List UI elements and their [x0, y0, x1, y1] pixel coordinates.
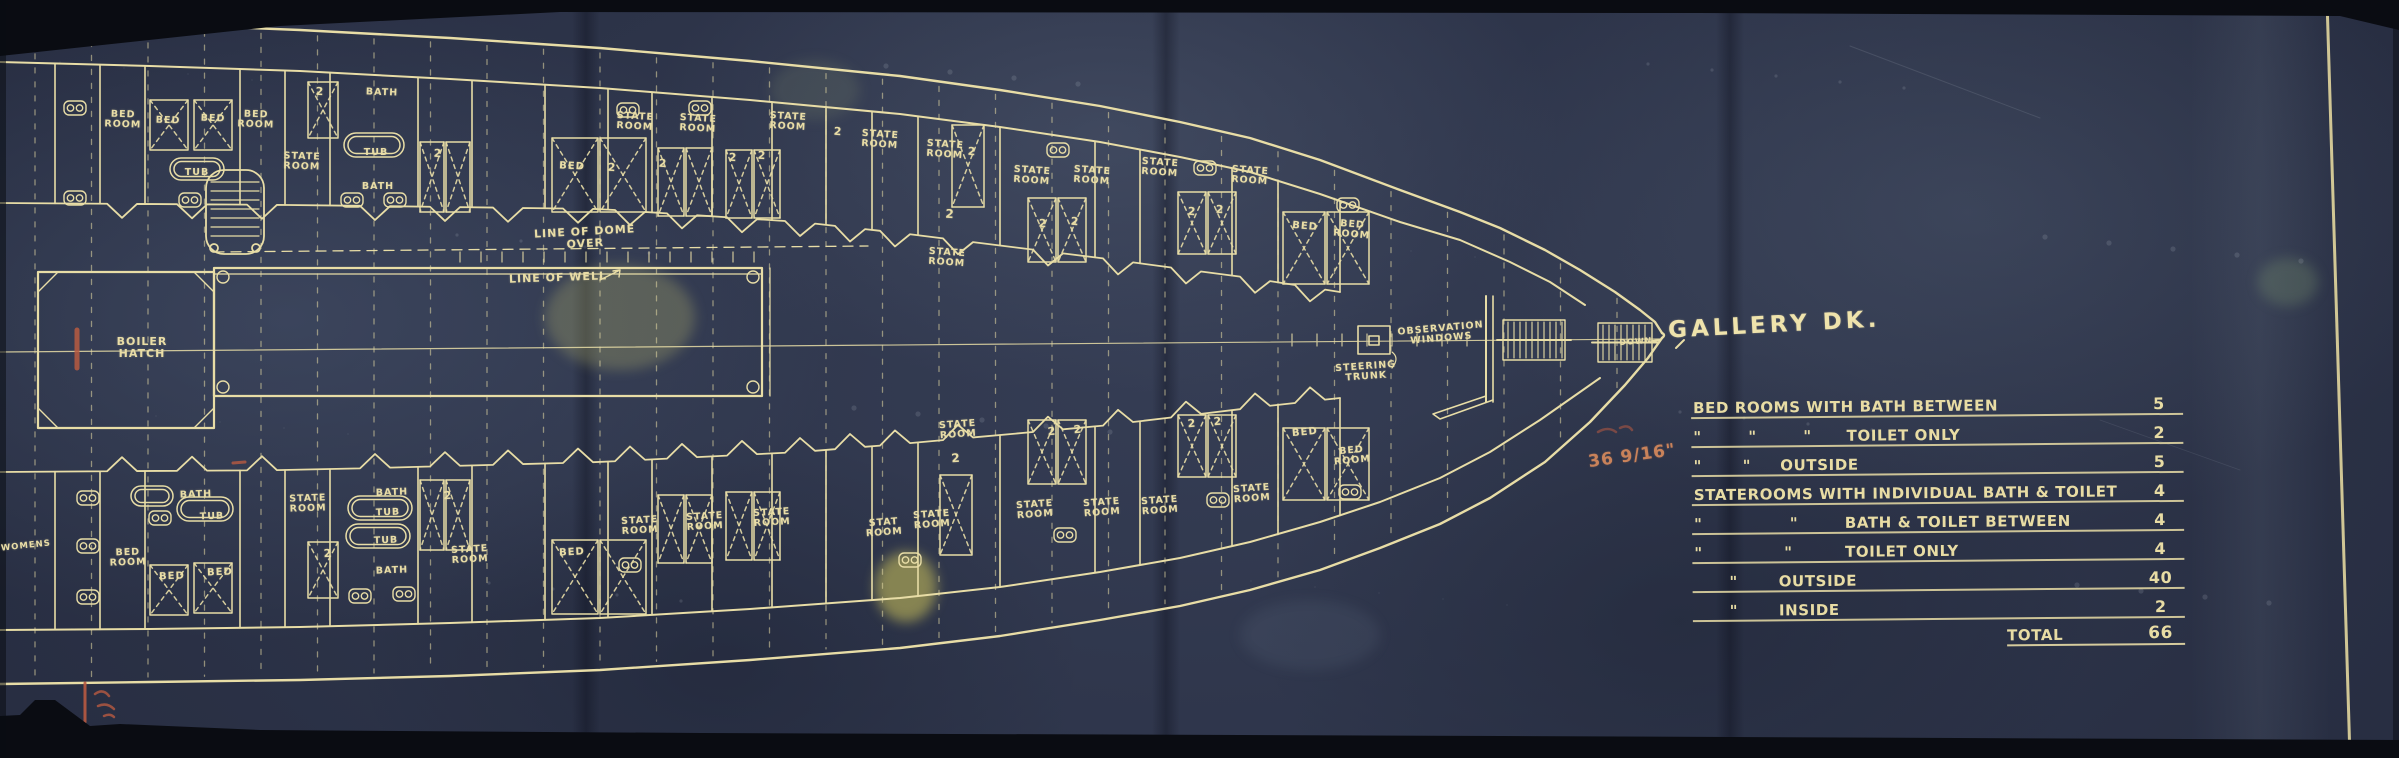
blueprint-photo: BOILER HATCHLINE OF DOME OVERLINE OF WEL…: [0, 0, 2399, 758]
summary-row: " " OUTSIDE5: [1691, 444, 2183, 477]
summary-row-label: " OUTSIDE: [1692, 572, 1857, 591]
summary-row-value: 5: [2135, 452, 2183, 471]
corridor-walls: [0, 203, 1340, 472]
hull-outline: [0, 20, 1664, 684]
summary-row: " OUTSIDE40: [1692, 560, 2184, 593]
summary-row-value: 4: [2136, 481, 2184, 500]
bed-icons: [150, 82, 1369, 615]
summary-row: " INSIDE2: [1693, 589, 2185, 622]
summary-row: " " BATH & TOILET BETWEEN4: [1692, 502, 2184, 535]
sheet-border-line: [2327, 0, 2350, 758]
summary-row-value: 2: [2135, 423, 2183, 442]
summary-row-label: BED ROOMS WITH BATH BETWEEN: [1691, 396, 1998, 417]
summary-row: " " TOILET ONLY4: [1692, 531, 2184, 564]
summary-row-label: " " BATH & TOILET BETWEEN: [1692, 512, 2071, 533]
summary-row: BED ROOMS WITH BATH BETWEEN5: [1691, 386, 2183, 419]
ladder-gratings: [1497, 320, 1684, 362]
total-value: 66: [2148, 623, 2185, 643]
summary-row-value: 5: [2135, 394, 2183, 413]
summary-row-label: " " OUTSIDE: [1691, 456, 1858, 475]
bathtub-icons: [131, 133, 412, 548]
summary-row-value: 4: [2136, 510, 2184, 529]
summary-row-label: " INSIDE: [1693, 601, 1840, 620]
summary-row-value: 2: [2137, 597, 2185, 616]
summary-row-label: " " " TOILET ONLY: [1691, 426, 1960, 446]
well-opening: [214, 268, 770, 396]
summary-rows: BED ROOMS WITH BATH BETWEEN5" " " TOILET…: [1691, 386, 2185, 622]
summary-row: STATEROOMS WITH INDIVIDUAL BATH & TOILET…: [1692, 473, 2184, 506]
stateroom-summary-table: BED ROOMS WITH BATH BETWEEN5" " " TOILET…: [1691, 386, 2185, 649]
centerline: [0, 334, 1660, 352]
summary-row-value: 40: [2136, 568, 2184, 587]
summary-row-label: " " TOILET ONLY: [1692, 542, 1959, 562]
summary-row: " " " TOILET ONLY2: [1691, 415, 2183, 448]
stern-structures: [1358, 296, 1493, 419]
summary-row-value: 4: [2136, 539, 2184, 558]
total-label: TOTAL: [2007, 626, 2063, 644]
summary-total-row: TOTAL 66: [2007, 619, 2185, 647]
summary-row-label: STATEROOMS WITH INDIVIDUAL BATH & TOILET: [1692, 482, 2118, 504]
